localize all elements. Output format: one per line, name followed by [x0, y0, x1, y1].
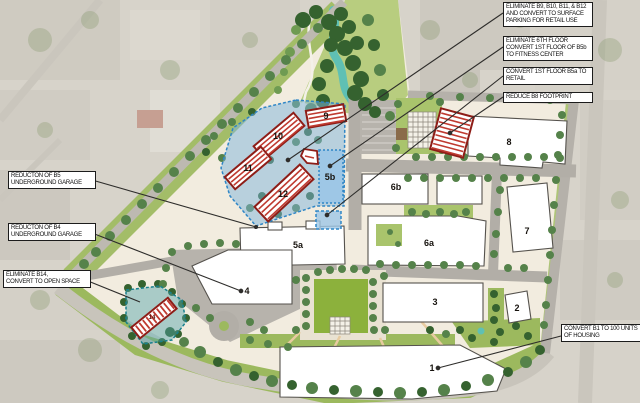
- fountain: [478, 328, 485, 335]
- callout-reduction-b4-garage: REDUCTON OF B4 UNDERGROUND GARAGE: [8, 223, 96, 241]
- callout-eliminate-6th-floor: ELIMINATE 6TH FLOOR CONVERT 1ST FLOOR OF…: [503, 36, 593, 61]
- building-label-12: 12: [278, 189, 288, 199]
- building-label-5a: 5a: [293, 240, 303, 250]
- building-label-14: 14: [149, 315, 156, 321]
- callout-eliminate-b14: ELIMINATE B14, CONVERT TO OPEN SPACE: [3, 270, 91, 288]
- callout-convert-b5a-retail: CONVERT 1ST FLOOR B5a TO RETAIL: [503, 67, 593, 85]
- callout-reduce-b8: REDUCE B8 FOOTPRINT: [503, 92, 593, 103]
- building-label-2: 2: [514, 303, 519, 313]
- building-label-10: 10: [273, 131, 283, 141]
- building-label-6b: 6b: [391, 182, 402, 192]
- building-label-3: 3: [432, 297, 437, 307]
- building-label-5b: 5b: [325, 172, 336, 182]
- building-label-6a: 6a: [424, 238, 434, 248]
- building-label-1: 1: [429, 363, 434, 373]
- site-plan-screenshot: ELIMINATE B9, B10, B11, & B12 AND CONVER…: [0, 0, 640, 403]
- garden-trellis-plaza: [330, 317, 350, 334]
- building-label-9: 9: [323, 111, 328, 121]
- building-label-8: 8: [506, 137, 511, 147]
- callout-eliminate-b9-b12: ELIMINATE B9, B10, B11, & B12 AND CONVER…: [503, 2, 593, 27]
- building-label-7: 7: [524, 226, 529, 236]
- building-label-11: 11: [243, 163, 253, 173]
- callout-convert-b1-housing: CONVERT B1 TO 100 UNITS OF HOUSING: [561, 324, 640, 342]
- callout-reduction-b5-garage: REDUCTON OF B5 UNDERGROUND GARAGE: [8, 171, 96, 189]
- building-7: [507, 183, 553, 252]
- building-label-4: 4: [244, 286, 249, 296]
